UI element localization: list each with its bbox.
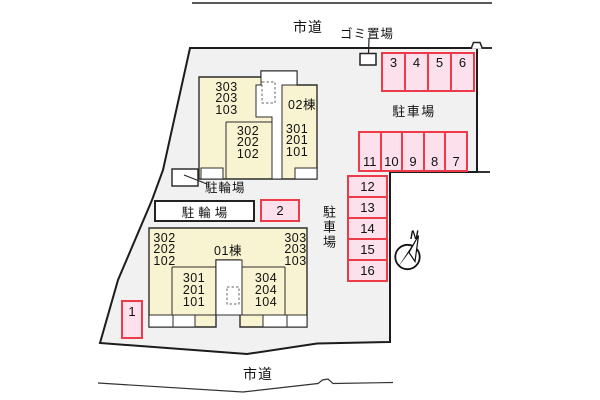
parking-spot-3: 3 (381, 52, 406, 92)
bicycle-shed-upper (172, 169, 198, 186)
bicycle-parking-label-upper: 駐輪場 (205, 177, 246, 196)
building-02-units-lower-left: 302 202 102 (230, 126, 266, 160)
spot-number: 3 (390, 55, 397, 70)
building-02-porch-right (295, 168, 317, 179)
spot-number: 12 (360, 179, 374, 194)
building-01-porch-c (263, 315, 287, 327)
parking-spot-6: 6 (450, 52, 475, 92)
boundary-marker (471, 43, 483, 49)
building-01-name: 01棟 (209, 240, 247, 259)
parking-area-label-top: 駐車場 (388, 101, 440, 120)
parking-spot-12: 12 (347, 175, 388, 198)
road-bottom-label: 市道 (231, 364, 285, 384)
building-01-porch-b (173, 315, 195, 327)
spot-number: 14 (360, 221, 374, 236)
garbage-area-label: ゴミ置場 (340, 23, 394, 42)
parking-row-11-7: 11 10 9 8 7 (358, 131, 468, 172)
building-01-porch-a (149, 315, 173, 327)
parking-spot-13: 13 (347, 196, 388, 219)
building-01-porch-d (287, 315, 307, 327)
spot-number: 4 (413, 55, 420, 70)
road-top-label: 市道 (281, 17, 335, 37)
spot-number: 5 (436, 55, 443, 70)
spot-number: 16 (360, 263, 374, 278)
building-01-units-lower-right: 304 204 104 (249, 272, 283, 308)
building-02-name: 02棟 (284, 94, 320, 113)
parking-row-3-6: 3 4 5 6 (381, 52, 475, 92)
spot-number: 11 (363, 154, 377, 169)
compass-north-label: N (410, 230, 418, 242)
spot-number: 2 (276, 203, 283, 218)
spot-number: 7 (453, 154, 460, 169)
parking-spot-15: 15 (347, 238, 388, 261)
site-plan-drawing (0, 0, 600, 400)
parking-spot-10: 10 (380, 131, 404, 172)
spot-number: 8 (431, 154, 438, 169)
parking-spot-7: 7 (444, 131, 468, 172)
bicycle-parking-box-lower: 駐輪場 (154, 200, 255, 222)
spot-number: 15 (360, 242, 374, 257)
parking-spot-2: 2 (260, 199, 300, 222)
building-02-units-upper: 303 203 103 (209, 82, 244, 116)
parking-col-12-16: 12 13 14 15 16 (347, 175, 388, 282)
parking-spot-11: 11 (358, 131, 382, 172)
building-01-units-upper-left: 302 202 102 (149, 233, 180, 267)
parking-spot-1: 1 (121, 300, 143, 339)
garbage-box (360, 54, 376, 66)
parking-spot-4: 4 (404, 52, 429, 92)
parking-spot-5: 5 (427, 52, 452, 92)
spot-number: 6 (459, 55, 466, 70)
parking-spot-9: 9 (401, 131, 425, 172)
building-02-units-lower-right: 301 201 101 (279, 124, 315, 158)
spot-number: 1 (128, 304, 135, 319)
parking-spot-8: 8 (423, 131, 447, 172)
spot-number: 13 (360, 200, 374, 215)
parking-spot-14: 14 (347, 217, 388, 240)
spot-number: 9 (409, 154, 416, 169)
parking-spot-16: 16 (347, 259, 388, 282)
site-plan: 市道 市道 ゴミ置場 駐車場 駐車場 3 4 5 6 11 10 9 8 7 1… (0, 0, 600, 400)
building-01-units-lower-left: 301 201 101 (177, 272, 211, 308)
parking-area-label-side: 駐車場 (319, 205, 338, 250)
building-01-units-upper-right: 303 203 103 (280, 233, 311, 267)
spot-number: 10 (384, 154, 398, 169)
